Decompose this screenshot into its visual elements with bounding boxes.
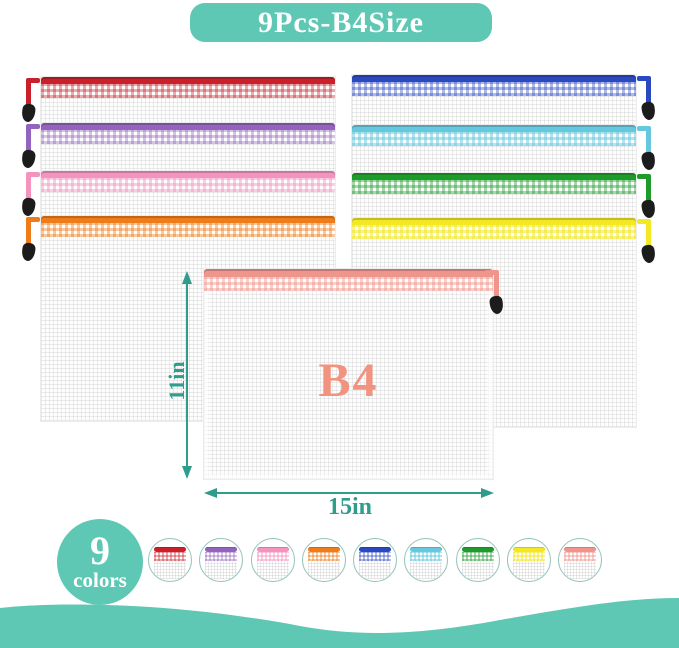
zipper-pull (631, 75, 653, 125)
swatch-coral (558, 538, 602, 582)
zipper-bar (204, 269, 493, 277)
zipper-bar (352, 218, 636, 225)
zipper-bar (352, 173, 636, 180)
color-swatch-row (148, 538, 602, 584)
swatch-blue (353, 538, 397, 582)
zipper-pull-tab (21, 103, 36, 123)
pouch-front-coral: B4 (203, 268, 494, 480)
zipper-bar (352, 125, 636, 132)
mesh-band (352, 82, 636, 96)
zipper-pull (24, 77, 46, 127)
zipper-pull-tab (641, 244, 656, 264)
zipper-bar (41, 171, 335, 178)
mesh-band (352, 132, 636, 146)
width-dimension-label: 15in (300, 495, 400, 519)
mesh-band (41, 84, 335, 98)
zipper-bar (41, 216, 335, 223)
zipper-pull (24, 171, 46, 221)
zipper-pull-tab (21, 149, 36, 169)
mesh-band (41, 130, 335, 144)
zipper-pull (24, 216, 46, 266)
swatch-pink (251, 538, 295, 582)
zipper-pull-tab (21, 242, 36, 262)
swatch-purple (199, 538, 243, 582)
swatch-green (456, 538, 500, 582)
zipper-pull-tab (641, 151, 656, 171)
zipper-pull (24, 123, 46, 173)
swatch-red (148, 538, 192, 582)
size-label: B4 (204, 353, 493, 408)
zipper-pull-tab (21, 197, 36, 217)
zipper-bar (41, 123, 335, 130)
swatch-yellow (507, 538, 551, 582)
title-badge: 9Pcs-B4Size (190, 3, 492, 42)
zipper-pull-tab (641, 101, 656, 121)
mesh-band (352, 225, 636, 239)
zipper-pull (631, 173, 653, 223)
mesh-band (204, 277, 493, 291)
zipper-pull (631, 125, 653, 175)
mesh-band (41, 178, 335, 192)
product-image: 9Pcs-B4Size (0, 0, 679, 648)
colors-count-label: colors (73, 570, 127, 591)
zipper-pull (479, 269, 501, 319)
zipper-bar (41, 77, 335, 84)
swatch-sky-blue (404, 538, 448, 582)
swatch-orange (302, 538, 346, 582)
mesh-band (41, 223, 335, 237)
colors-count-badge: 9 colors (57, 519, 143, 605)
zipper-pull-tab (641, 199, 656, 219)
zipper-pull (631, 218, 653, 268)
mesh-band (352, 180, 636, 194)
title-text: 9Pcs-B4Size (258, 8, 424, 38)
zipper-bar (352, 75, 636, 82)
colors-count: 9 (90, 533, 110, 569)
height-dimension-label: 11in (166, 351, 188, 411)
